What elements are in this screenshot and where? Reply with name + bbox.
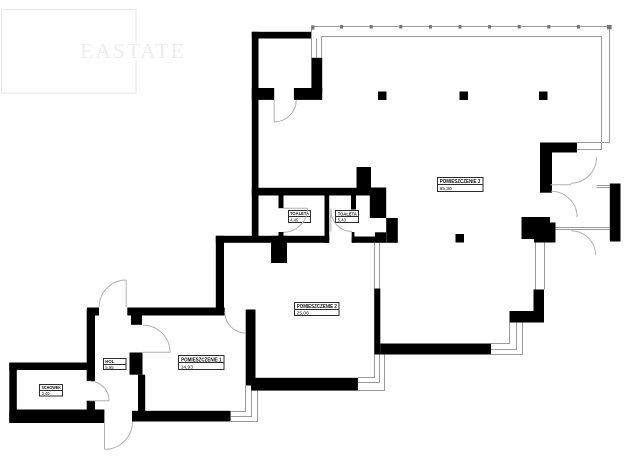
svg-text:14,93: 14,93 xyxy=(181,365,194,371)
svg-text:TOALETA: TOALETA xyxy=(338,211,357,216)
svg-text:3,40: 3,40 xyxy=(42,391,51,396)
svg-text:4,45: 4,45 xyxy=(290,217,299,222)
svg-text:HOL: HOL xyxy=(105,359,114,364)
svg-text:25,00: 25,00 xyxy=(297,310,310,316)
svg-text:POMIESZCZENIE 2: POMIESZCZENIE 2 xyxy=(297,304,337,310)
svg-text:5,40: 5,40 xyxy=(338,218,347,223)
svg-text:5,95: 5,95 xyxy=(105,365,114,370)
svg-text:POMIESZCZENIE 3: POMIESZCZENIE 3 xyxy=(440,179,481,185)
svg-text:95,30: 95,30 xyxy=(440,186,453,192)
svg-text:SCHOWEK: SCHOWEK xyxy=(41,385,61,390)
svg-text:EASTATE: EASTATE xyxy=(80,39,185,63)
svg-text:POMIESZCZENIE 1: POMIESZCZENIE 1 xyxy=(181,357,222,363)
